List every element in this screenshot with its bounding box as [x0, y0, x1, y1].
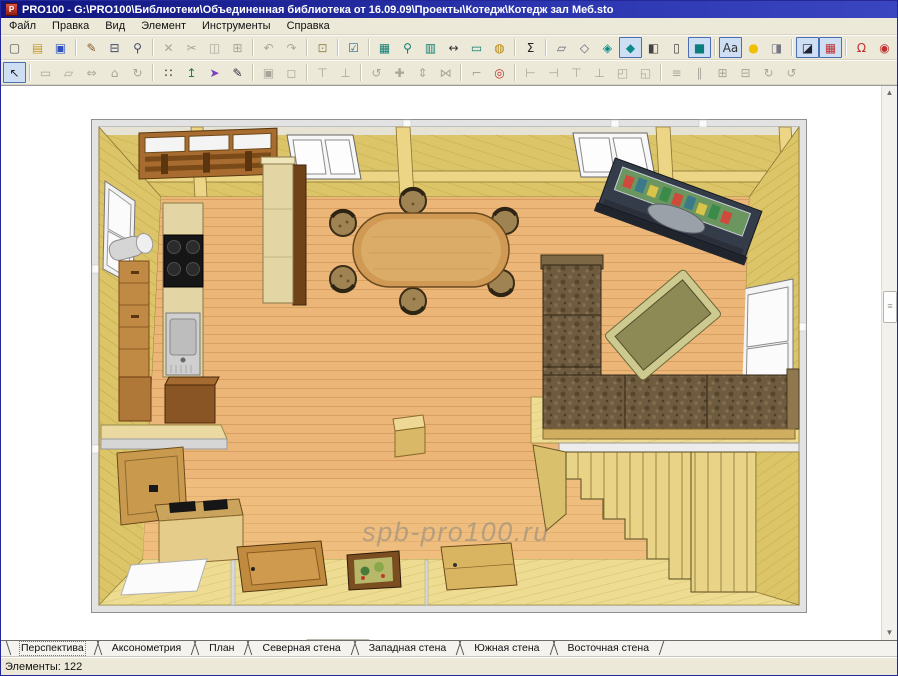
room-plan[interactable]: spb-pro100.ru [91, 119, 807, 613]
report-icon: ⚲ [403, 42, 412, 54]
shading-button[interactable]: ◨ [765, 37, 788, 58]
select-region-button[interactable]: ∷ [157, 62, 180, 83]
menu-bar: ФайлПравкаВидЭлементИнструментыСправка [1, 18, 897, 35]
align-bottom-button[interactable]: ⊥ [588, 62, 611, 83]
select-region-icon: ∷ [165, 67, 173, 79]
toolbar-separator [252, 64, 254, 81]
toolbar-separator [514, 39, 516, 56]
select-tool-button[interactable]: ↖ [3, 62, 26, 83]
view-solid-icon: ◆ [626, 42, 635, 54]
settings-dialog-icon: ☑ [348, 42, 359, 54]
show-text-icon: Aa [723, 42, 739, 54]
rotate-button[interactable]: ↺ [365, 62, 388, 83]
rotate-icon: ↺ [371, 67, 381, 79]
distribute-h-icon: ≡ [671, 67, 681, 79]
new-file-button[interactable]: ▢ [3, 37, 26, 58]
align-left-button[interactable]: ⊢ [519, 62, 542, 83]
copy-button[interactable]: ◫ [203, 37, 226, 58]
distribute-h-button[interactable]: ≡ [665, 62, 688, 83]
toolbar-separator [306, 64, 308, 81]
center-point-icon: ◎ [494, 67, 504, 79]
south-door[interactable] [237, 541, 327, 592]
toolbar-separator [75, 39, 77, 56]
export-report-button[interactable]: ✎ [80, 37, 103, 58]
side-shelf[interactable] [101, 425, 227, 449]
tab-Западная стена[interactable]: Западная стена [358, 641, 458, 656]
stair-corner-panel[interactable] [756, 452, 799, 605]
view-box-edges-button[interactable]: ◧ [642, 37, 665, 58]
mirror-icon: ⋈ [440, 67, 452, 79]
lighting-icon: ● [748, 42, 758, 54]
view-sketch-button[interactable]: ◇ [573, 37, 596, 58]
open-file-button[interactable]: ▤ [26, 37, 49, 58]
tab-label: План [208, 642, 235, 655]
view-wireframe-icon: ▱ [557, 42, 566, 54]
view-rendered-button[interactable]: ■ [688, 37, 711, 58]
align-top-icon: ⊤ [571, 67, 581, 79]
print-button[interactable]: ⊟ [103, 37, 126, 58]
kitchen-drawers[interactable] [119, 261, 149, 377]
room-tool-icon: ⌂ [111, 67, 119, 79]
corner-icon: ⌐ [471, 67, 481, 79]
corner-button[interactable]: ⌐ [465, 62, 488, 83]
wall-tool-button[interactable]: ▭ [34, 62, 57, 83]
snap-magnet-icon: Ω [857, 42, 866, 54]
dining-chair[interactable] [330, 266, 356, 292]
valuation-button[interactable]: ◍ [488, 37, 511, 58]
snap-magnet-button[interactable]: Ω [850, 37, 873, 58]
snap-points-icon: ◉ [879, 42, 889, 54]
wood-chest[interactable] [165, 377, 219, 423]
lighting-button[interactable]: ● [742, 37, 765, 58]
notes-icon: ▭ [471, 42, 482, 54]
shading-icon: ◨ [771, 42, 782, 54]
app-window: P PRO100 - G:\PRO100\Библиотеки\Объедине… [0, 0, 898, 676]
toolbar-separator [460, 64, 462, 81]
rotate-cw-button[interactable]: ↻ [757, 62, 780, 83]
view-hidden-line-button[interactable]: ◈ [596, 37, 619, 58]
delete-icon: ✕ [163, 42, 173, 54]
toolbar-separator [29, 64, 31, 81]
menu-Инструменты[interactable]: Инструменты [194, 19, 279, 33]
ungroup-icon: ◻ [287, 67, 297, 79]
tab-label: Северная стена [261, 642, 341, 655]
print-icon: ⊟ [109, 42, 119, 54]
stretch-icon: ⇕ [417, 67, 427, 79]
dining-table[interactable] [353, 213, 509, 287]
print-preview-button[interactable]: ⚲ [126, 37, 149, 58]
center-point-button[interactable]: ◎ [488, 62, 511, 83]
move-front-button[interactable]: ◰ [611, 62, 634, 83]
south-door[interactable] [441, 543, 517, 590]
move-icon: ✚ [394, 67, 404, 79]
menu-Вид[interactable]: Вид [97, 19, 133, 33]
draw-tool-icon: ✎ [232, 67, 242, 79]
menu-Правка[interactable]: Правка [44, 19, 97, 33]
paste-icon: ⊞ [232, 42, 242, 54]
scroll-up-arrow[interactable]: ▲ [882, 86, 897, 100]
toolbar-separator [545, 39, 547, 56]
distribute-v-icon: ∥ [697, 67, 703, 79]
sum-button[interactable]: Σ [519, 37, 542, 58]
undo-button[interactable]: ↶ [257, 37, 280, 58]
cooktop[interactable] [164, 235, 203, 287]
sum-icon: Σ [527, 42, 535, 54]
pin-bottom-button[interactable]: ⊥ [334, 62, 357, 83]
view-wireframe-button[interactable]: ▱ [550, 37, 573, 58]
tab-label: Аксонометрия [111, 642, 182, 655]
toolbar-row2: ↖▭▱⇔⌂↻∷↥➤✎▣◻⊤⊥↺✚⇕⋈⌐◎⊢⊣⊤⊥◰◱≡∥⊞⊟↻↺ [1, 60, 897, 85]
menu-Справка[interactable]: Справка [279, 19, 338, 33]
group-icon: ▣ [263, 67, 274, 79]
rotate-ccw-icon: ↺ [786, 67, 796, 79]
status-bar: Элементы: 122 [1, 657, 897, 675]
paste-button[interactable]: ⊞ [226, 37, 249, 58]
fit-width-icon: ⊞ [717, 67, 727, 79]
menu-Файл[interactable]: Файл [1, 19, 44, 33]
view-hidden-line-icon: ◈ [603, 42, 612, 54]
orbit-tool-icon: ↻ [132, 67, 142, 79]
stool-block[interactable] [393, 415, 425, 457]
redo-icon: ↷ [286, 42, 296, 54]
dining-chair[interactable] [330, 210, 356, 236]
toolbar-separator [845, 39, 847, 56]
window-title: PRO100 - G:\PRO100\Библиотеки\Объединенн… [22, 4, 613, 16]
valuation-icon: ◍ [494, 42, 504, 54]
save-file-icon: ▣ [55, 42, 66, 54]
report-button[interactable]: ⚲ [396, 37, 419, 58]
watermark: spb-pro100.ru [362, 517, 550, 547]
tab-Аксонометрия[interactable]: Аксонометрия [101, 641, 192, 656]
pointer-3d-button[interactable]: ➤ [203, 62, 226, 83]
floor-tool-button[interactable]: ▱ [57, 62, 80, 83]
move-back-button[interactable]: ◱ [634, 62, 657, 83]
element-list-button[interactable]: ▥ [419, 37, 442, 58]
rotate-cw-icon: ↻ [763, 67, 773, 79]
pin-bottom-icon: ⊥ [340, 67, 350, 79]
scroll-down-arrow[interactable]: ▼ [882, 626, 897, 640]
copy-icon: ◫ [209, 42, 220, 54]
tab-Восточная стена[interactable]: Восточная стена [557, 641, 661, 656]
notes-button[interactable]: ▭ [465, 37, 488, 58]
dining-chair[interactable] [400, 288, 426, 314]
toolbar-separator [368, 39, 370, 56]
stretch-button[interactable]: ⇕ [411, 62, 434, 83]
redo-button[interactable]: ↷ [280, 37, 303, 58]
room-tool-button[interactable]: ⌂ [103, 62, 126, 83]
element-list-icon: ▥ [425, 42, 436, 54]
show-text-button[interactable]: Aa [719, 37, 742, 58]
snap-points-button[interactable]: ◉ [873, 37, 896, 58]
tab-План[interactable]: План [198, 641, 245, 656]
rotate-ccw-button[interactable]: ↺ [780, 62, 803, 83]
delete-button[interactable]: ✕ [157, 37, 180, 58]
horizontal-splitter-handle[interactable]: ❘❘❘ [306, 639, 370, 640]
draw-tool-button[interactable]: ✎ [226, 62, 249, 83]
toolbar-separator [337, 39, 339, 56]
fit-width-button[interactable]: ⊞ [711, 62, 734, 83]
toolbar-separator [514, 64, 516, 81]
tab-label: Восточная стена [567, 642, 651, 655]
white-mat[interactable] [121, 559, 207, 595]
fit-height-icon: ⊟ [740, 67, 750, 79]
settings-dialog-button[interactable]: ☑ [342, 37, 365, 58]
pin-top-button[interactable]: ⊤ [311, 62, 334, 83]
status-elements: Элементы: 122 [5, 661, 82, 673]
tab-Южная стена[interactable]: Южная стена [463, 641, 550, 656]
title-bar[interactable]: P PRO100 - G:\PRO100\Библиотеки\Объедине… [1, 1, 897, 18]
wall-picture[interactable] [347, 551, 401, 590]
move-front-icon: ◰ [617, 67, 628, 79]
fit-height-button[interactable]: ⊟ [734, 62, 757, 83]
tab-label: Западная стена [368, 642, 448, 655]
scrollbar-thumb[interactable] [883, 291, 897, 323]
kitchen-tall-cabinet[interactable] [261, 157, 306, 305]
dimensions-button[interactable]: ↔ [442, 37, 465, 58]
wall-tool-icon: ▭ [40, 67, 51, 79]
toolbar-separator [152, 64, 154, 81]
resize-tool-icon: ⇔ [86, 67, 96, 79]
view-box-button[interactable]: ▯ [665, 37, 688, 58]
price-list-button[interactable]: ▦ [373, 37, 396, 58]
align-bottom-icon: ⊥ [594, 67, 604, 79]
vertical-scrollbar[interactable]: ▲ ▼ [881, 86, 897, 640]
align-right-button[interactable]: ⊣ [542, 62, 565, 83]
ungroup-button[interactable]: ◻ [280, 62, 303, 83]
toolbar-separator [360, 64, 362, 81]
view-rendered-icon: ■ [694, 42, 705, 54]
move-button[interactable]: ✚ [388, 62, 411, 83]
toolbar-row1: ▢▤▣✎⊟⚲✕✂◫⊞↶↷⊡☑▦⚲▥↔▭◍Σ▱◇◈◆◧▯■Aa●◨◪▦Ω◉◎⊕▼⊖ [1, 35, 897, 60]
align-right-icon: ⊣ [548, 67, 558, 79]
kitchen-low-cabinet[interactable] [119, 377, 151, 421]
move-back-icon: ◱ [640, 67, 651, 79]
dimensions-icon: ↔ [448, 42, 458, 54]
show-grid-button[interactable]: ▦ [819, 37, 842, 58]
tab-Перспектива[interactable]: Перспектива [10, 641, 95, 656]
toolbar-separator [714, 39, 716, 56]
kitchen-upper-rack[interactable] [139, 128, 277, 179]
save-file-button[interactable]: ▣ [49, 37, 72, 58]
cut-icon: ✂ [186, 42, 196, 54]
kitchen-sink[interactable] [166, 313, 200, 375]
undo-icon: ↶ [263, 42, 273, 54]
view-box-icon: ▯ [673, 42, 680, 54]
select-tool-icon: ↖ [9, 67, 19, 79]
viewport[interactable]: spb-pro100.ru ❘❘❘ ▲ ▼ [1, 85, 897, 640]
dining-chair[interactable] [400, 188, 426, 214]
toolbar-separator [252, 39, 254, 56]
pin-top-icon: ⊤ [317, 67, 327, 79]
projection-icon: ◪ [802, 42, 813, 54]
view-sketch-icon: ◇ [580, 42, 589, 54]
show-grid-icon: ▦ [825, 42, 836, 54]
toolbar-separator [306, 39, 308, 56]
stair-opening-edge[interactable] [559, 443, 799, 452]
open-file-icon: ▤ [32, 42, 43, 54]
distribute-v-button[interactable]: ∥ [688, 62, 711, 83]
tab-label: Южная стена [473, 642, 540, 655]
menu-Элемент[interactable]: Элемент [133, 19, 194, 33]
group-button[interactable]: ▣ [257, 62, 280, 83]
tab-label: Перспектива [20, 642, 85, 655]
toolbar-separator [152, 39, 154, 56]
price-list-icon: ▦ [379, 42, 390, 54]
cut-button[interactable]: ✂ [180, 37, 203, 58]
align-left-icon: ⊢ [525, 67, 535, 79]
new-file-icon: ▢ [9, 42, 20, 54]
orbit-tool-button[interactable]: ↻ [126, 62, 149, 83]
move-vertical-icon: ↥ [186, 67, 196, 79]
properties-icon: ⊡ [317, 42, 327, 54]
view-solid-button[interactable]: ◆ [619, 37, 642, 58]
pointer-3d-icon: ➤ [209, 67, 219, 79]
export-report-icon: ✎ [86, 42, 96, 54]
align-top-button[interactable]: ⊤ [565, 62, 588, 83]
print-preview-icon: ⚲ [133, 42, 142, 54]
resize-tool-button[interactable]: ⇔ [80, 62, 103, 83]
floor-tool-icon: ▱ [64, 67, 73, 79]
tab-Северная стена[interactable]: Северная стена [251, 641, 351, 656]
toolbar-separator [660, 64, 662, 81]
app-icon: P [5, 3, 18, 16]
chest-with-grill-top[interactable] [155, 499, 243, 565]
projection-button[interactable]: ◪ [796, 37, 819, 58]
move-vertical-button[interactable]: ↥ [180, 62, 203, 83]
tab-bar: ПерспективаАксонометрияПланСеверная стен… [1, 640, 897, 657]
properties-button[interactable]: ⊡ [311, 37, 334, 58]
toolbar-separator [791, 39, 793, 56]
view-box-edges-icon: ◧ [648, 42, 659, 54]
mirror-button[interactable]: ⋈ [434, 62, 457, 83]
